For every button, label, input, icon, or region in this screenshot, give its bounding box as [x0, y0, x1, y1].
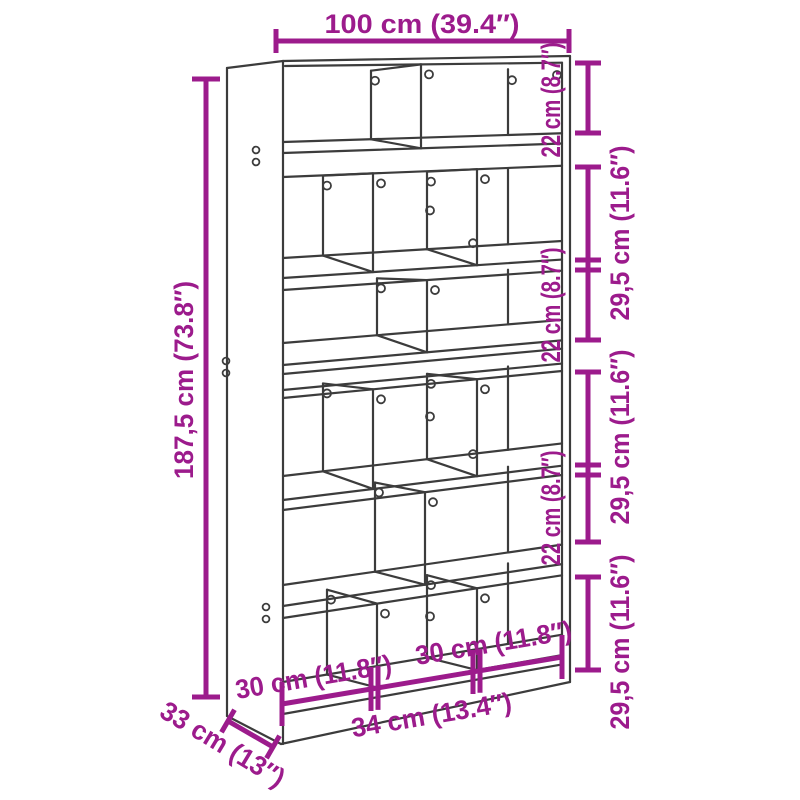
row-height-label-3: 29,5 cm (11.6″): [605, 555, 635, 730]
shelf-height-label-3: 22 cm (8.7″): [536, 451, 566, 566]
row-height-label-2: 29,5 cm (11.6″): [605, 350, 635, 525]
height-dimension-label: 187,5 cm (73.8″): [169, 281, 199, 479]
bottom-width-label-middle: 34 cm (13.4″): [349, 687, 514, 743]
shelf-height-label-2: 22 cm (8.7″): [536, 248, 566, 363]
bottom-width-label-right: 30 cm (11.8″): [413, 615, 574, 671]
row-height-label-1: 29,5 cm (11.6″): [605, 146, 635, 321]
shelf-height-label-1: 22 cm (8.7″): [536, 43, 566, 158]
dimension-diagram: 100 cm (39.4″) 187,5 cm (73.8″) 22 cm (8…: [0, 0, 800, 800]
diagram-canvas: 100 cm (39.4″) 187,5 cm (73.8″) 22 cm (8…: [0, 0, 800, 800]
width-dimension-label: 100 cm (39.4″): [325, 9, 520, 39]
